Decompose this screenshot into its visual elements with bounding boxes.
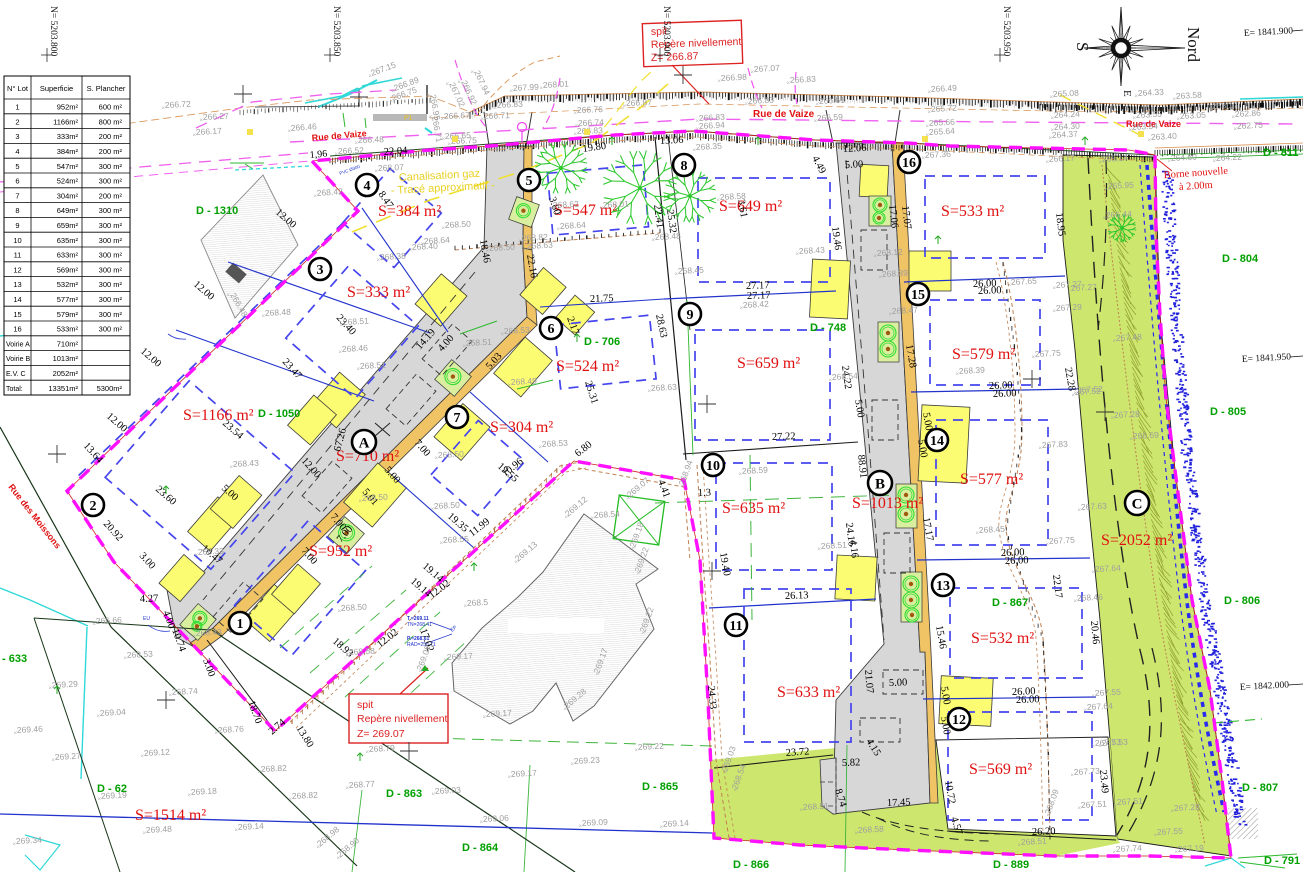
- svg-text:269.46: 269.46: [17, 724, 44, 735]
- svg-text:269.18: 269.18: [191, 786, 218, 797]
- svg-text:D - 863: D - 863: [386, 788, 422, 800]
- svg-text:268.59: 268.59: [742, 465, 769, 476]
- svg-text:N= 5203.800: N= 5203.800: [48, 6, 58, 56]
- svg-text:266.87: 266.87: [626, 97, 653, 108]
- svg-text:266.46: 266.46: [290, 121, 317, 133]
- svg-text:268.46: 268.46: [342, 343, 369, 354]
- svg-text:200 m²: 200 m²: [99, 147, 123, 156]
- svg-text:269.06: 269.06: [483, 813, 510, 824]
- svg-text:300 m²: 300 m²: [99, 236, 123, 245]
- svg-text:15: 15: [911, 288, 925, 303]
- svg-text:26.13: 26.13: [785, 590, 809, 602]
- svg-text:S=659 m²: S=659 m²: [737, 355, 800, 372]
- svg-text:1166m²: 1166m²: [53, 117, 78, 126]
- svg-text:266.94: 266.94: [699, 120, 726, 131]
- svg-text:D - 864: D - 864: [462, 842, 499, 854]
- svg-text:267.64: 267.64: [1095, 563, 1122, 574]
- svg-text:304m²: 304m²: [57, 191, 79, 200]
- svg-text:267.28: 267.28: [1174, 802, 1201, 813]
- svg-text:C: C: [1132, 496, 1143, 512]
- svg-text:11: 11: [729, 619, 742, 634]
- svg-text:S=532 m²: S=532 m²: [971, 630, 1034, 647]
- svg-text:268.5: 268.5: [467, 597, 489, 608]
- svg-text:268.45: 268.45: [678, 265, 705, 276]
- svg-text:269.48: 269.48: [146, 824, 173, 835]
- svg-text:269.03: 269.03: [435, 785, 462, 796]
- svg-text:262.75: 262.75: [1237, 120, 1264, 131]
- svg-text:300 m²: 300 m²: [99, 295, 123, 304]
- svg-text:268.35: 268.35: [696, 141, 723, 152]
- svg-text:268.39: 268.39: [882, 268, 909, 279]
- svg-text:263.54: 263.54: [1132, 121, 1159, 132]
- svg-text:710m²: 710m²: [57, 339, 79, 348]
- svg-text:A: A: [359, 435, 370, 451]
- svg-text:27.22: 27.22: [772, 431, 796, 443]
- svg-text:264.22: 264.22: [1216, 152, 1243, 163]
- svg-text:15: 15: [13, 310, 21, 319]
- svg-text:4: 4: [364, 179, 371, 194]
- svg-text:268.63: 268.63: [651, 382, 678, 393]
- svg-text:269.34: 269.34: [16, 835, 43, 846]
- svg-text:268.76: 268.76: [218, 724, 245, 735]
- svg-text:E.V. C: E.V. C: [6, 371, 26, 378]
- svg-text:2: 2: [90, 499, 97, 514]
- svg-text:266.67: 266.67: [444, 110, 471, 121]
- svg-text:268.50: 268.50: [438, 449, 465, 460]
- svg-text:533m²: 533m²: [57, 325, 79, 334]
- svg-text:263.05: 263.05: [1180, 110, 1207, 121]
- svg-text:266.83: 266.83: [497, 99, 524, 110]
- svg-text:268.53: 268.53: [127, 649, 154, 660]
- svg-text:7: 7: [15, 191, 19, 200]
- svg-text:268.48: 268.48: [655, 231, 682, 242]
- svg-text:D - 804: D - 804: [1222, 253, 1259, 265]
- svg-text:268.54: 268.54: [832, 371, 859, 382]
- svg-text:264.24: 264.24: [1054, 109, 1081, 120]
- svg-text:26.00: 26.00: [993, 388, 1017, 400]
- svg-text:268.64: 268.64: [560, 220, 587, 231]
- svg-text:266.83: 266.83: [577, 125, 604, 136]
- svg-text:268.51: 268.51: [343, 316, 370, 327]
- svg-text:268.53: 268.53: [504, 325, 531, 336]
- svg-text:268.51: 268.51: [821, 540, 848, 551]
- svg-text:265.08: 265.08: [1053, 88, 1080, 99]
- svg-text:D - 867: D - 867: [992, 597, 1028, 609]
- svg-text:S: S: [1073, 42, 1092, 51]
- svg-text:268.58: 268.58: [349, 646, 376, 657]
- svg-text:S=1514 m²: S=1514 m²: [135, 807, 206, 824]
- svg-text:2: 2: [15, 117, 19, 126]
- svg-text:D - 706: D - 706: [584, 336, 620, 348]
- svg-text:262.86: 262.86: [1235, 108, 1262, 119]
- svg-text:S=1013 m²: S=1013 m²: [852, 495, 923, 512]
- svg-text:267.53: 267.53: [1095, 737, 1122, 748]
- svg-text:4: 4: [15, 147, 19, 156]
- svg-text:D - 889: D - 889: [993, 859, 1029, 871]
- svg-text:268.50: 268.50: [489, 242, 516, 253]
- svg-text:264.60: 264.60: [1171, 152, 1198, 163]
- svg-text:S=633 m²: S=633 m²: [777, 684, 840, 701]
- svg-text:268.01: 268.01: [603, 199, 630, 210]
- svg-text:5300m²: 5300m²: [97, 384, 123, 393]
- svg-text:267.19: 267.19: [1178, 843, 1205, 854]
- svg-text:3: 3: [317, 263, 324, 278]
- svg-text:633m²: 633m²: [57, 251, 79, 260]
- svg-text:268.43: 268.43: [196, 627, 223, 638]
- svg-text:S. Plancher: S. Plancher: [87, 84, 126, 93]
- svg-text:268.82: 268.82: [261, 763, 288, 774]
- svg-text:268.63: 268.63: [527, 240, 554, 251]
- svg-text:8: 8: [681, 159, 688, 174]
- svg-text:5: 5: [526, 174, 533, 189]
- svg-text:268.46: 268.46: [1077, 592, 1104, 603]
- svg-text:532m²: 532m²: [57, 280, 79, 289]
- svg-text:268.47: 268.47: [892, 305, 919, 316]
- svg-text:265.14: 265.14: [1102, 153, 1129, 164]
- svg-text:268.33: 268.33: [198, 546, 225, 557]
- svg-text:22.04: 22.04: [383, 145, 408, 158]
- svg-text:268.54: 268.54: [594, 509, 621, 520]
- svg-text:269.09: 269.09: [582, 817, 609, 828]
- svg-text:268.53: 268.53: [542, 438, 569, 449]
- svg-text:300 m²: 300 m²: [99, 206, 123, 215]
- svg-text:266.66: 266.66: [96, 615, 123, 626]
- svg-text:267.73: 267.73: [1074, 766, 1101, 777]
- svg-text:Voirie B: Voirie B: [6, 356, 30, 363]
- svg-text:267.63: 267.63: [1081, 501, 1108, 512]
- svg-text:13351m²: 13351m²: [48, 384, 78, 393]
- svg-text:300 m²: 300 m²: [99, 310, 123, 319]
- svg-text:268.07: 268.07: [378, 162, 405, 173]
- svg-text:N= 5203.900: N= 5203.900: [661, 6, 671, 56]
- svg-text:Repère nivellement: Repère nivellement: [357, 713, 448, 725]
- svg-text:268.82: 268.82: [292, 790, 319, 801]
- svg-text:10: 10: [706, 459, 720, 474]
- svg-text:D - 866: D - 866: [733, 859, 769, 871]
- svg-text:268.12: 268.12: [877, 247, 904, 258]
- svg-text:266.44: 266.44: [1106, 209, 1133, 220]
- svg-text:268.01: 268.01: [543, 79, 570, 90]
- svg-text:12.06: 12.06: [843, 143, 867, 155]
- svg-text:N= 5203.850: N= 5203.850: [331, 6, 341, 56]
- svg-text:267.55: 267.55: [1095, 687, 1122, 698]
- svg-text:266.52: 266.52: [338, 145, 365, 156]
- svg-text:4.27: 4.27: [140, 593, 159, 605]
- svg-text:14: 14: [13, 295, 21, 304]
- svg-text:268.51: 268.51: [360, 360, 387, 371]
- svg-text:267.51: 267.51: [1081, 799, 1108, 810]
- svg-text:269.19: 269.19: [101, 790, 128, 801]
- svg-text:300 m²: 300 m²: [99, 221, 123, 230]
- svg-text:S=569 m²: S=569 m²: [969, 761, 1032, 778]
- svg-text:9: 9: [15, 221, 19, 230]
- svg-text:267.65: 267.65: [1011, 276, 1038, 287]
- svg-text:N= 5203.950: N= 5203.950: [1001, 6, 1011, 56]
- svg-text:267.75: 267.75: [1035, 348, 1062, 359]
- svg-text:268.58: 268.58: [720, 191, 747, 202]
- svg-text:20.46: 20.46: [1088, 620, 1101, 644]
- svg-text:269.14: 269.14: [238, 821, 265, 832]
- svg-text:7: 7: [454, 411, 461, 426]
- svg-text:269.23: 269.23: [574, 755, 601, 766]
- svg-text:266.49: 266.49: [931, 83, 958, 94]
- svg-text:263.55: 263.55: [1136, 109, 1163, 120]
- svg-text:12: 12: [952, 713, 966, 728]
- svg-text:265.95: 265.95: [1108, 180, 1135, 191]
- svg-text:600 m²: 600 m²: [99, 103, 123, 112]
- svg-text:14: 14: [930, 434, 944, 449]
- svg-text:spit: spit: [357, 699, 373, 711]
- svg-text:268.42: 268.42: [743, 299, 770, 310]
- svg-text:524m²: 524m²: [57, 177, 79, 186]
- svg-text:5.00: 5.00: [845, 159, 864, 171]
- svg-text:265.72: 265.72: [931, 103, 958, 114]
- svg-text:266.61: 266.61: [819, 95, 846, 106]
- svg-text:D - 865: D - 865: [642, 781, 678, 793]
- svg-text:267.52: 267.52: [1075, 386, 1102, 397]
- svg-text:24.33: 24.33: [705, 685, 718, 709]
- svg-text:Voirie A: Voirie A: [6, 341, 30, 348]
- svg-text:21.07: 21.07: [862, 669, 875, 693]
- svg-text:S=533 m²: S=533 m²: [941, 203, 1004, 220]
- svg-text:267.27: 267.27: [1071, 282, 1098, 293]
- svg-text:1,96: 1,96: [309, 149, 327, 161]
- svg-text:6: 6: [15, 177, 19, 186]
- svg-text:269.17: 269.17: [486, 708, 513, 719]
- svg-text:- 633: - 633: [2, 653, 27, 665]
- svg-text:E: E: [1121, 90, 1133, 97]
- svg-text:N° Lot: N° Lot: [7, 84, 29, 93]
- svg-text:300 m²: 300 m²: [99, 280, 123, 289]
- svg-text:263.58: 263.58: [1176, 90, 1203, 101]
- svg-text:Superficie: Superficie: [40, 84, 73, 93]
- svg-text:S=635 m²: S=635 m²: [722, 500, 785, 517]
- svg-text:266.83: 266.83: [790, 74, 817, 85]
- svg-text:263.40: 263.40: [1151, 131, 1178, 142]
- svg-text:265.64: 265.64: [929, 126, 956, 137]
- svg-text:16: 16: [13, 325, 21, 334]
- svg-text:268.48: 268.48: [265, 307, 292, 318]
- svg-text:300 m²: 300 m²: [99, 265, 123, 274]
- svg-text:266.17: 266.17: [196, 126, 223, 137]
- svg-text:1013m²: 1013m²: [53, 354, 79, 363]
- svg-text:269.04: 269.04: [100, 707, 127, 718]
- svg-text:Z= 266.87: Z= 266.87: [651, 50, 699, 64]
- svg-text:268.43: 268.43: [799, 245, 826, 256]
- svg-text:577m²: 577m²: [57, 295, 79, 304]
- svg-text:267.29: 267.29: [1056, 302, 1083, 313]
- svg-text:269.22: 269.22: [638, 741, 665, 752]
- svg-text:267.51: 267.51: [1117, 796, 1144, 807]
- svg-text:5.82: 5.82: [842, 757, 861, 769]
- svg-text:579m²: 579m²: [57, 310, 79, 319]
- svg-text:268.51: 268.51: [1021, 836, 1048, 847]
- svg-text:800 m²: 800 m²: [99, 117, 123, 126]
- svg-text:S=524 m²: S=524 m²: [556, 358, 619, 375]
- svg-text:266.59: 266.59: [817, 112, 844, 123]
- svg-text:269.17: 269.17: [447, 651, 474, 662]
- svg-text:268.74: 268.74: [172, 686, 199, 697]
- svg-text:267.55: 267.55: [1157, 826, 1184, 837]
- svg-text:Rue de Vaize: Rue de Vaize: [753, 109, 815, 120]
- svg-text:264.33: 264.33: [1138, 87, 1165, 98]
- svg-text:269.29: 269.29: [52, 679, 79, 690]
- svg-text:268.50: 268.50: [341, 602, 368, 613]
- svg-text:S=304 m²: S=304 m²: [490, 419, 553, 436]
- svg-text:1.3: 1.3: [698, 488, 712, 499]
- svg-text:13: 13: [13, 280, 21, 289]
- svg-text:267.99: 267.99: [513, 82, 540, 93]
- svg-text:267.64: 267.64: [1087, 701, 1114, 712]
- svg-text:266.48: 266.48: [358, 134, 385, 145]
- svg-text:11: 11: [14, 251, 22, 260]
- svg-text:268.79: 268.79: [369, 743, 396, 754]
- svg-text:268.62: 268.62: [553, 199, 580, 210]
- svg-text:26.00: 26.00: [1005, 555, 1029, 567]
- svg-text:333m²: 333m²: [57, 132, 79, 141]
- svg-text:659m²: 659m²: [57, 221, 79, 230]
- svg-text:200 m²: 200 m²: [99, 132, 123, 141]
- svg-text:S=579 m²: S=579 m²: [952, 346, 1015, 363]
- svg-text:B: B: [875, 476, 885, 492]
- svg-text:23.72: 23.72: [785, 746, 809, 759]
- svg-text:267.75: 267.75: [1049, 535, 1076, 546]
- svg-text:267.36: 267.36: [925, 149, 952, 160]
- svg-text:D - 1310: D - 1310: [196, 205, 238, 217]
- svg-text:266.71: 266.71: [484, 110, 511, 121]
- svg-text:D - 1050: D - 1050: [258, 408, 300, 420]
- svg-text:269.14: 269.14: [663, 818, 690, 829]
- svg-text:D - 806: D - 806: [1224, 595, 1260, 607]
- svg-text:à 2.00m: à 2.00m: [1179, 180, 1214, 193]
- svg-text:13.06: 13.06: [660, 135, 684, 147]
- svg-text:268.39: 268.39: [959, 365, 986, 376]
- svg-text:267.83: 267.83: [1042, 439, 1069, 450]
- svg-text:268.43: 268.43: [233, 458, 260, 469]
- svg-text:2052m²: 2052m²: [53, 369, 79, 378]
- svg-text:16: 16: [902, 156, 916, 171]
- svg-text:3: 3: [15, 132, 19, 141]
- svg-text:D - 807: D - 807: [1242, 782, 1278, 794]
- svg-text:D - 811: D - 811: [1263, 147, 1298, 159]
- svg-text:9: 9: [687, 308, 694, 323]
- svg-text:Z= 269.07: Z= 269.07: [357, 728, 405, 740]
- svg-text:6: 6: [548, 322, 555, 337]
- svg-text:300 m²: 300 m²: [99, 251, 123, 260]
- svg-text:266.72: 266.72: [165, 99, 192, 110]
- svg-text:569m²: 569m²: [57, 265, 79, 274]
- svg-text:266.17: 266.17: [1049, 153, 1076, 164]
- svg-text:D - 805: D - 805: [1210, 406, 1246, 418]
- svg-text:D - 791: D - 791: [1264, 855, 1300, 867]
- svg-text:17.45: 17.45: [887, 797, 911, 809]
- svg-text:S=1166 m²: S=1166 m²: [183, 407, 254, 424]
- svg-text:269.12: 269.12: [144, 747, 171, 758]
- svg-text:268.50: 268.50: [362, 492, 389, 503]
- svg-text:267.74: 267.74: [1116, 843, 1143, 854]
- svg-text:S=2052 m²: S=2052 m²: [1101, 532, 1172, 549]
- svg-text:5.00: 5.00: [889, 677, 908, 689]
- svg-text:268.51: 268.51: [466, 337, 493, 348]
- svg-text:8: 8: [15, 206, 19, 215]
- svg-text:Nord: Nord: [1184, 27, 1203, 62]
- svg-text:Total:: Total:: [6, 386, 23, 393]
- svg-text:649m²: 649m²: [57, 206, 79, 215]
- svg-text:13: 13: [936, 579, 950, 594]
- svg-text:269.17: 269.17: [511, 768, 538, 779]
- svg-text:267.28: 267.28: [1114, 409, 1141, 420]
- svg-text:266.69: 266.69: [1133, 430, 1160, 441]
- svg-text:1: 1: [15, 103, 19, 112]
- svg-text:268.77: 268.77: [349, 779, 376, 790]
- svg-text:4.16: 4.16: [847, 539, 860, 558]
- svg-text:266.27: 266.27: [203, 111, 230, 122]
- svg-text:26.00: 26.00: [978, 285, 1002, 297]
- svg-text:268.50: 268.50: [434, 500, 461, 511]
- svg-text:EU: EU: [143, 616, 150, 622]
- svg-text:26.00: 26.00: [1016, 694, 1040, 706]
- svg-text:269.27: 269.27: [55, 751, 82, 762]
- svg-text:300 m²: 300 m²: [99, 162, 123, 171]
- svg-text:266.76: 266.76: [577, 104, 604, 115]
- svg-text:266.98: 266.98: [721, 72, 748, 83]
- svg-text:P1: P1: [404, 115, 413, 122]
- svg-text:200 m²: 200 m²: [99, 191, 123, 200]
- svg-text:268.42: 268.42: [316, 186, 343, 198]
- svg-text:952m²: 952m²: [57, 103, 79, 112]
- svg-text:21.75: 21.75: [590, 293, 614, 305]
- svg-text:268.55: 268.55: [443, 534, 470, 545]
- svg-text:267.48: 267.48: [1116, 332, 1143, 343]
- svg-text:268.50: 268.50: [445, 219, 472, 230]
- svg-text:5: 5: [15, 162, 19, 171]
- svg-text:268.40: 268.40: [412, 241, 439, 252]
- svg-text:10: 10: [13, 236, 21, 245]
- svg-text:384m²: 384m²: [57, 147, 79, 156]
- svg-text:S=577 m²: S=577 m²: [960, 471, 1023, 488]
- svg-text:300 m²: 300 m²: [99, 325, 123, 334]
- svg-text:268.45: 268.45: [979, 524, 1006, 535]
- svg-text:268.51: 268.51: [803, 801, 830, 812]
- svg-text:264.37: 264.37: [1052, 129, 1079, 140]
- svg-text:1: 1: [237, 617, 244, 632]
- svg-text:635m²: 635m²: [57, 236, 79, 245]
- svg-text:547m²: 547m²: [57, 162, 79, 171]
- svg-text:S=333 m²: S=333 m²: [347, 284, 410, 301]
- svg-text:267.07: 267.07: [754, 63, 781, 74]
- svg-text:D - 748: D - 748: [810, 322, 846, 334]
- svg-text:300 m²: 300 m²: [99, 177, 123, 186]
- svg-text:266.83: 266.83: [748, 95, 775, 106]
- svg-text:12: 12: [13, 265, 21, 274]
- svg-text:268.58: 268.58: [858, 824, 885, 835]
